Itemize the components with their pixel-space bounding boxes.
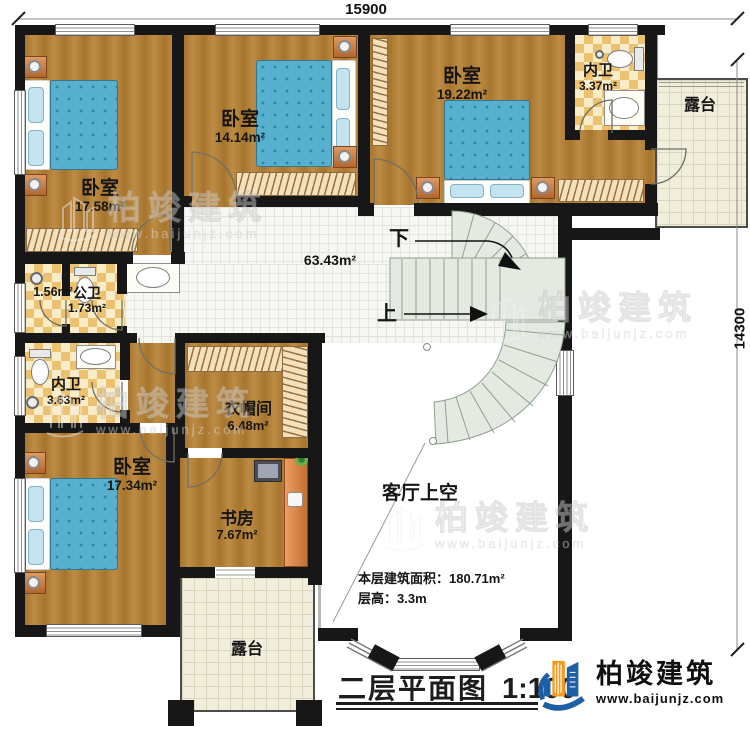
wall xyxy=(15,333,137,343)
nightstand xyxy=(333,36,357,58)
stair-down-label: 下 xyxy=(386,228,412,250)
terrace-post xyxy=(168,700,194,726)
room-label-bedroom-bl: 卧室 17.34m² xyxy=(72,457,192,493)
title-underline xyxy=(336,708,538,710)
bed xyxy=(24,80,118,170)
room-name: 卧室 xyxy=(40,178,160,199)
nightstand xyxy=(22,572,46,594)
wall xyxy=(520,628,572,641)
void-parapet-line xyxy=(318,585,321,628)
room-label-cloakroom: 衣帽间 6.48m² xyxy=(188,401,308,433)
wall xyxy=(184,196,192,207)
room-area: 19.22m² xyxy=(402,87,522,102)
stair-up-label: 上 xyxy=(374,303,400,325)
wardrobe xyxy=(26,228,138,252)
wall xyxy=(175,567,215,578)
wall xyxy=(222,448,320,458)
dimension-width: 15900 xyxy=(330,1,402,18)
wall xyxy=(117,326,127,333)
wall xyxy=(565,228,660,240)
wall xyxy=(414,203,658,216)
window xyxy=(450,24,550,36)
wall xyxy=(15,252,133,264)
wall xyxy=(308,452,322,585)
wardrobe xyxy=(558,179,644,202)
brand-website: www.baijunjz.com xyxy=(596,691,724,706)
room-name: 露台 xyxy=(205,641,289,659)
window xyxy=(556,350,574,396)
dimension-height: 14300 xyxy=(732,291,749,367)
room-area: 3.37m² xyxy=(556,80,640,93)
wall xyxy=(318,628,358,641)
floor-height-note: 层高：3.3m xyxy=(358,589,568,609)
window xyxy=(14,478,26,573)
wardrobe xyxy=(372,38,388,146)
floor-area-note: 本层建筑面积：180.71m² xyxy=(358,569,568,589)
stair-newel xyxy=(430,438,437,445)
room-label-terrace-bottom: 露台 xyxy=(205,641,289,659)
cloakroom-rack xyxy=(187,346,283,372)
floor-height-value: 3.3m xyxy=(397,591,427,606)
wall xyxy=(358,25,370,207)
title-underline xyxy=(336,702,538,705)
watermark-icon xyxy=(383,500,425,552)
floor-height-label: 层高： xyxy=(358,591,397,606)
room-label-bedroom-tr: 卧室 19.22m² xyxy=(402,66,522,102)
wall xyxy=(308,340,322,452)
floor-plan: 卧室 17.58m² 卧室 14.14m² 卧室 19.22m² 内卫 3.37… xyxy=(0,0,750,733)
faucet-icon xyxy=(595,50,604,59)
stair-newel xyxy=(424,344,431,351)
shower-head-icon xyxy=(30,272,43,285)
room-area: 6.48m² xyxy=(188,419,308,434)
wall xyxy=(175,333,325,343)
room-name: 衣帽间 xyxy=(188,401,308,419)
wall xyxy=(15,423,140,433)
sink xyxy=(609,97,639,119)
room-name: 内卫 xyxy=(28,377,104,394)
vestibule-floor xyxy=(128,343,175,423)
room-name: 公卫 xyxy=(58,286,116,302)
wardrobe xyxy=(236,172,356,196)
room-area: 17.58m² xyxy=(40,199,160,214)
cup-icon xyxy=(287,492,303,507)
wall xyxy=(255,567,320,578)
room-label-bedroom-tl: 卧室 17.58m² xyxy=(40,178,160,214)
window xyxy=(14,356,26,416)
drawing-title-text: 二层平面图 xyxy=(338,667,488,707)
room-area: 14.14m² xyxy=(180,130,300,145)
room-name: 卧室 xyxy=(72,457,192,478)
wall xyxy=(608,130,655,140)
room-name: 书房 xyxy=(177,509,297,528)
wall xyxy=(358,203,374,216)
room-label-ensuite-tr: 内卫 3.37m² xyxy=(556,63,640,93)
floor-area-value: 180.71m² xyxy=(449,571,505,586)
wall xyxy=(236,196,370,207)
room-label-terrace-tr: 露台 xyxy=(658,97,742,115)
room-name: 卧室 xyxy=(402,66,522,87)
sink xyxy=(136,267,170,288)
window xyxy=(215,24,320,36)
room-name: 客厅上空 xyxy=(348,483,492,504)
room-name: 内卫 xyxy=(556,63,640,80)
floor-notes: 本层建筑面积：180.71m² 层高：3.3m xyxy=(358,569,568,609)
terrace-post xyxy=(296,700,322,726)
room-label-ensuite-ml: 内卫 3.63m² xyxy=(28,377,104,407)
room-name: 露台 xyxy=(658,97,742,115)
room-area: 3.63m² xyxy=(28,394,104,407)
brand-logo-icon xyxy=(536,654,588,712)
wall xyxy=(117,264,127,294)
wall xyxy=(171,252,185,264)
hallway-floor-lower xyxy=(125,264,558,343)
wall xyxy=(565,130,580,140)
room-area: 17.34m² xyxy=(72,478,192,493)
wall xyxy=(120,410,130,423)
brand-logo: 柏竣建筑 www.baijunjz.com xyxy=(536,654,724,712)
nightstand xyxy=(416,177,440,199)
window xyxy=(55,24,135,36)
room-name: 卧室 xyxy=(180,109,300,130)
nightstand xyxy=(22,452,46,474)
brand-text-block: 柏竣建筑 www.baijunjz.com xyxy=(596,661,724,706)
nightstand xyxy=(333,146,357,168)
wall xyxy=(62,324,70,333)
wall xyxy=(120,343,130,380)
room-area: 1.73m² xyxy=(58,302,116,315)
room-area: 63.43m² xyxy=(283,253,377,269)
room-area: 7.67m² xyxy=(177,528,297,543)
computer-icon xyxy=(254,460,282,482)
room-label-public-bath: 公卫 1.73m² xyxy=(58,286,116,315)
room-label-bedroom-tm: 卧室 14.14m² xyxy=(180,109,300,145)
room-label-living-void: 客厅上空 xyxy=(348,483,492,504)
sink xyxy=(80,348,111,365)
room-label-hallway: 63.43m² xyxy=(283,253,377,269)
terrace-parapet xyxy=(659,82,744,90)
wall xyxy=(645,184,657,216)
nightstand xyxy=(23,56,47,78)
window xyxy=(14,90,26,175)
brand-name: 柏竣建筑 xyxy=(596,661,724,688)
bed xyxy=(444,100,530,204)
room-label-study: 书房 7.67m² xyxy=(177,509,297,543)
window xyxy=(588,24,638,36)
window xyxy=(46,624,142,637)
nightstand xyxy=(531,177,555,199)
floor-area-label: 本层建筑面积： xyxy=(358,571,449,586)
